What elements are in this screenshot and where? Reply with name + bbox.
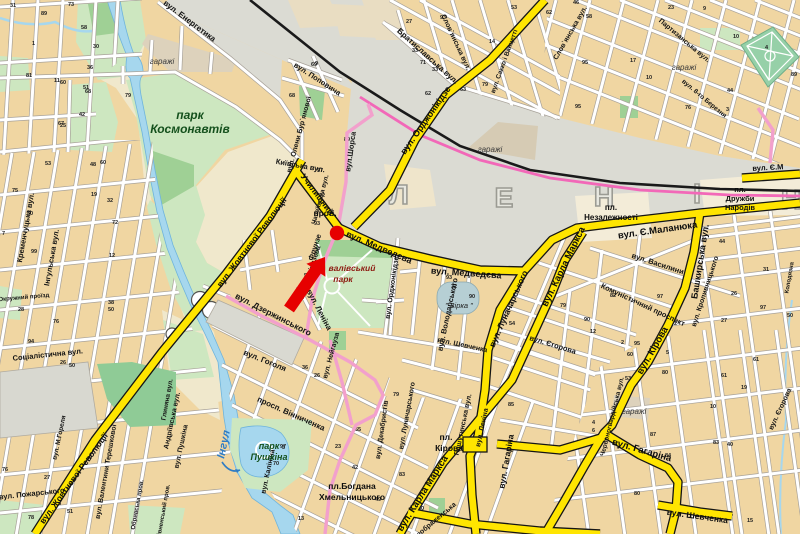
svg-text:10: 10	[733, 34, 739, 40]
svg-text:60: 60	[100, 160, 106, 166]
svg-text:80: 80	[662, 370, 668, 376]
svg-text:14: 14	[489, 39, 496, 45]
svg-text:83: 83	[713, 440, 719, 446]
svg-text:27: 27	[721, 318, 727, 324]
svg-text:50: 50	[787, 313, 793, 319]
svg-text:95: 95	[634, 341, 640, 347]
svg-text:23: 23	[668, 5, 674, 11]
svg-text:95: 95	[582, 60, 588, 66]
svg-text:1: 1	[32, 41, 35, 47]
svg-text:58: 58	[586, 14, 592, 20]
svg-text:71: 71	[420, 60, 426, 66]
svg-text:79: 79	[482, 82, 488, 88]
svg-text:89: 89	[791, 72, 797, 78]
svg-text:пл.Богдана: пл.Богдана	[328, 481, 376, 491]
svg-text:72: 72	[112, 220, 118, 226]
svg-text:3: 3	[282, 445, 285, 451]
svg-text:62: 62	[425, 91, 431, 97]
svg-text:32: 32	[107, 198, 113, 204]
svg-text:19: 19	[91, 192, 97, 198]
svg-text:9: 9	[703, 6, 706, 12]
svg-text:50: 50	[69, 363, 75, 369]
svg-text:68: 68	[289, 93, 295, 99]
svg-text:2: 2	[621, 340, 624, 346]
svg-text:валівський: валівський	[329, 263, 377, 273]
svg-text:79: 79	[393, 392, 399, 398]
svg-text:60: 60	[627, 352, 633, 358]
svg-text:44: 44	[727, 88, 734, 94]
svg-text:Дружби: Дружби	[726, 194, 755, 203]
svg-text:50: 50	[108, 307, 114, 313]
svg-text:85: 85	[508, 402, 514, 408]
svg-text:Народів: Народів	[725, 203, 755, 212]
svg-text:36: 36	[302, 365, 308, 371]
svg-text:94: 94	[28, 339, 35, 345]
svg-text:81: 81	[26, 73, 32, 79]
svg-text:89: 89	[41, 11, 47, 17]
svg-text:19: 19	[741, 385, 747, 391]
svg-text:79: 79	[125, 93, 131, 99]
svg-text:11: 11	[54, 78, 60, 84]
svg-text:75: 75	[12, 188, 18, 194]
svg-text:28: 28	[18, 307, 24, 313]
svg-text:26: 26	[60, 360, 66, 366]
svg-text:пл.: пл.	[734, 185, 745, 194]
svg-text:99: 99	[31, 249, 37, 255]
svg-text:68: 68	[85, 89, 91, 95]
svg-text:Хмельницького: Хмельницького	[319, 492, 385, 502]
svg-text:83: 83	[399, 472, 405, 478]
svg-text:58: 58	[81, 25, 87, 31]
svg-text:78: 78	[28, 515, 34, 521]
svg-text:5: 5	[666, 350, 669, 356]
svg-text:Незалежності: Незалежності	[584, 213, 638, 222]
svg-text:гаражі: гаражі	[672, 63, 697, 72]
svg-text:44: 44	[719, 239, 726, 245]
svg-text:80: 80	[634, 491, 640, 497]
svg-text:30: 30	[93, 44, 99, 50]
svg-text:7: 7	[2, 231, 5, 237]
svg-text:60: 60	[60, 80, 66, 86]
svg-text:пл.: пл.	[440, 432, 453, 442]
svg-text:46: 46	[573, 0, 579, 6]
svg-text:31: 31	[763, 267, 769, 273]
svg-text:48: 48	[90, 162, 96, 168]
svg-text:61: 61	[753, 357, 759, 363]
svg-text:90: 90	[584, 317, 590, 323]
svg-text:" Зірка ": " Зірка "	[445, 301, 473, 310]
svg-text:36: 36	[87, 65, 93, 71]
svg-text:26: 26	[731, 291, 737, 297]
svg-text:54: 54	[509, 321, 516, 327]
svg-text:73: 73	[68, 2, 74, 8]
svg-text:15: 15	[747, 518, 753, 524]
svg-text:Е: Е	[495, 182, 514, 213]
svg-text:26: 26	[314, 373, 320, 379]
svg-text:парк: парк	[176, 108, 204, 122]
svg-text:53: 53	[511, 5, 517, 11]
svg-text:пл.: пл.	[605, 203, 617, 212]
svg-text:69: 69	[311, 62, 317, 68]
svg-text:27: 27	[406, 19, 412, 25]
svg-text:76: 76	[685, 105, 691, 111]
svg-text:12: 12	[109, 253, 115, 259]
svg-text:парк: парк	[333, 274, 353, 284]
svg-text:62: 62	[546, 10, 552, 16]
svg-text:76: 76	[2, 467, 8, 473]
svg-text:67: 67	[58, 121, 64, 127]
svg-text:76: 76	[53, 319, 59, 325]
svg-text:90: 90	[469, 294, 475, 300]
svg-text:Космонавтів: Космонавтів	[150, 122, 229, 136]
svg-text:6: 6	[592, 428, 595, 434]
svg-text:Кірова: Кірова	[435, 443, 463, 453]
svg-text:95: 95	[575, 104, 581, 110]
svg-text:17: 17	[630, 58, 636, 64]
svg-text:38: 38	[108, 300, 114, 306]
svg-text:42: 42	[79, 112, 85, 118]
svg-text:10: 10	[710, 404, 716, 410]
svg-text:гаражі: гаражі	[150, 57, 175, 66]
svg-text:40: 40	[727, 442, 733, 448]
svg-text:Пушкіна: Пушкіна	[251, 452, 288, 462]
svg-text:87: 87	[650, 432, 656, 438]
svg-text:парк: парк	[259, 441, 280, 451]
svg-text:97: 97	[760, 305, 766, 311]
svg-text:вул. Є.М: вул. Є.М	[752, 162, 784, 173]
svg-text:10: 10	[646, 75, 652, 81]
svg-text:23: 23	[335, 444, 341, 450]
svg-text:51: 51	[67, 509, 73, 515]
svg-text:31: 31	[10, 3, 16, 9]
svg-text:61: 61	[721, 373, 727, 379]
svg-text:42: 42	[352, 465, 358, 471]
svg-text:12: 12	[590, 329, 596, 335]
svg-text:27: 27	[44, 475, 50, 481]
svg-text:79: 79	[560, 303, 566, 309]
svg-text:97: 97	[657, 294, 663, 300]
svg-text:53: 53	[45, 161, 51, 167]
svg-text:гаражі: гаражі	[478, 145, 503, 154]
svg-text:13: 13	[298, 516, 304, 522]
svg-text:гаражі: гаражі	[622, 407, 647, 416]
